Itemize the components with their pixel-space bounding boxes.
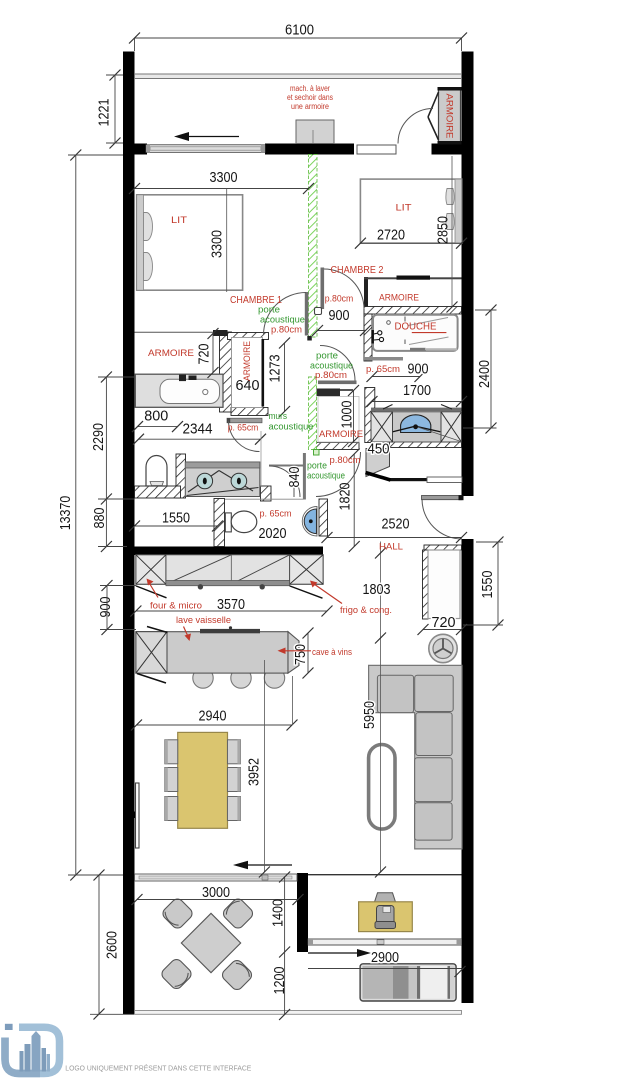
svg-text:2900: 2900	[371, 950, 399, 966]
svg-text:p. 65cm: p. 65cm	[228, 423, 259, 433]
svg-text:1221: 1221	[97, 99, 113, 127]
svg-text:2720: 2720	[377, 228, 405, 244]
svg-text:900: 900	[98, 597, 114, 618]
svg-text:acoustique: acoustique	[269, 422, 314, 432]
svg-text:720: 720	[197, 344, 213, 365]
svg-text:LOGO UNIQUEMENT PRÉSENT DANS C: LOGO UNIQUEMENT PRÉSENT DANS CETTE INTER…	[65, 1064, 251, 1073]
svg-text:four & micro: four & micro	[150, 601, 202, 612]
svg-text:2400: 2400	[477, 360, 493, 388]
svg-text:5950: 5950	[362, 701, 378, 729]
svg-text:2940: 2940	[199, 709, 227, 725]
svg-text:1803: 1803	[363, 582, 391, 598]
svg-text:3000: 3000	[202, 885, 230, 901]
svg-text:6100: 6100	[285, 23, 314, 39]
svg-text:1700: 1700	[403, 383, 431, 399]
svg-text:13370: 13370	[58, 496, 74, 531]
svg-text:cave à vins: cave à vins	[312, 647, 352, 658]
svg-text:1200: 1200	[272, 967, 288, 995]
svg-text:800: 800	[144, 409, 168, 425]
svg-text:acoustique: acoustique	[260, 315, 305, 325]
svg-text:2600: 2600	[105, 931, 121, 959]
svg-text:porte: porte	[316, 351, 338, 361]
svg-text:acoustique: acoustique	[307, 471, 345, 481]
svg-text:1820: 1820	[338, 483, 354, 511]
svg-text:lave vaisselle: lave vaisselle	[176, 615, 231, 626]
svg-text:une armoire: une armoire	[291, 102, 329, 111]
svg-text:3570: 3570	[217, 597, 245, 613]
svg-text:840: 840	[287, 467, 303, 488]
svg-text:acoustique: acoustique	[310, 361, 353, 371]
svg-text:880: 880	[92, 508, 108, 529]
svg-text:2344: 2344	[183, 422, 213, 438]
svg-text:p.80cm: p.80cm	[315, 370, 347, 380]
svg-text:ARMOIRE: ARMOIRE	[148, 348, 194, 359]
svg-text:ARMOIRE: ARMOIRE	[319, 429, 363, 440]
svg-text:900: 900	[329, 308, 350, 324]
svg-text:750: 750	[293, 644, 309, 665]
svg-text:p. 65cm: p. 65cm	[366, 364, 400, 374]
svg-text:et sechoir dans: et sechoir dans	[287, 93, 333, 102]
svg-text:HALL: HALL	[379, 542, 403, 553]
svg-text:CHAMBRE 2: CHAMBRE 2	[331, 265, 384, 276]
svg-text:LIT: LIT	[171, 215, 187, 226]
svg-text:murs: murs	[269, 411, 288, 421]
svg-text:3952: 3952	[247, 758, 263, 786]
svg-text:1400: 1400	[271, 899, 287, 927]
svg-text:frigo & cong.: frigo & cong.	[340, 605, 392, 616]
svg-text:p. 65cm: p. 65cm	[260, 509, 292, 519]
svg-text:720: 720	[432, 615, 456, 631]
svg-text:ARMOIRE: ARMOIRE	[444, 94, 455, 139]
svg-text:2850: 2850	[436, 216, 452, 244]
svg-text:p.80cm: p.80cm	[271, 325, 302, 335]
svg-text:ARMOIRE: ARMOIRE	[242, 341, 253, 381]
svg-text:1000: 1000	[340, 401, 356, 429]
svg-text:1550: 1550	[162, 511, 190, 527]
svg-text:2020: 2020	[259, 526, 287, 542]
svg-text:porte: porte	[258, 305, 280, 315]
svg-text:p.80cm: p.80cm	[325, 294, 354, 304]
svg-text:2290: 2290	[91, 423, 107, 451]
svg-text:3300: 3300	[210, 170, 238, 186]
svg-text:mach. à laver: mach. à laver	[290, 84, 330, 93]
svg-text:1273: 1273	[268, 355, 284, 383]
svg-text:porte: porte	[307, 461, 327, 471]
svg-text:900: 900	[408, 362, 429, 378]
svg-text:LIT: LIT	[396, 203, 412, 214]
svg-text:3300: 3300	[210, 230, 226, 258]
svg-text:450: 450	[368, 442, 390, 458]
svg-text:ARMOIRE: ARMOIRE	[379, 293, 419, 304]
svg-text:1550: 1550	[480, 571, 496, 599]
svg-text:DOUCHE: DOUCHE	[395, 322, 437, 333]
svg-text:2520: 2520	[382, 517, 410, 533]
svg-text:p.80cm: p.80cm	[330, 455, 361, 465]
